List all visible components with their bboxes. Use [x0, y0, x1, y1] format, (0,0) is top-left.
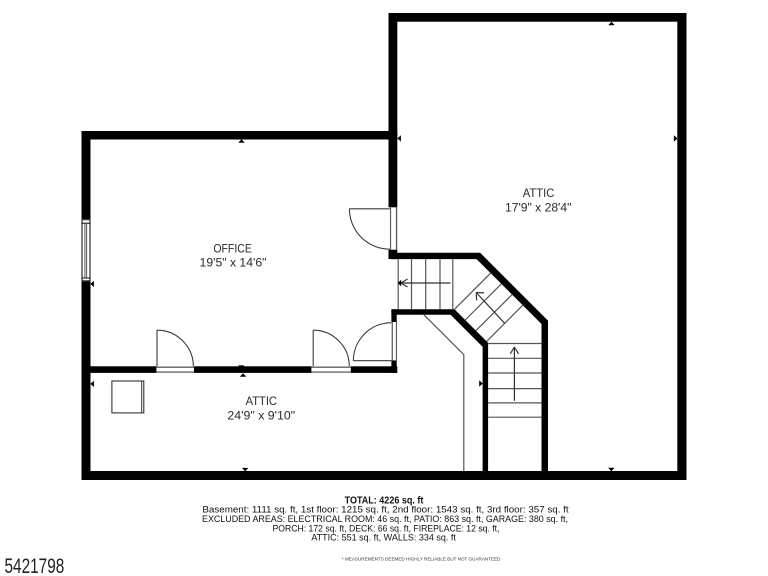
svg-text:19'5" x 14'6": 19'5" x 14'6": [200, 256, 267, 270]
svg-text:ATTIC: ATTIC: [523, 186, 555, 200]
svg-text:ATTIC: ATTIC: [246, 394, 277, 408]
svg-text:* MEASUREMENTS DEEMED HIGHLY R: * MEASUREMENTS DEEMED HIGHLY RELIABLE BU…: [342, 556, 501, 561]
svg-text:5421798: 5421798: [5, 554, 65, 576]
svg-text:OFFICE: OFFICE: [213, 241, 252, 255]
svg-text:24'9" x 9'10": 24'9" x 9'10": [227, 409, 295, 423]
svg-text:ATTIC: 551 sq. ft, WALLS: 334: ATTIC: 551 sq. ft, WALLS: 334 sq. ft: [311, 533, 456, 543]
svg-text:17'9" x 28'4": 17'9" x 28'4": [505, 201, 571, 215]
